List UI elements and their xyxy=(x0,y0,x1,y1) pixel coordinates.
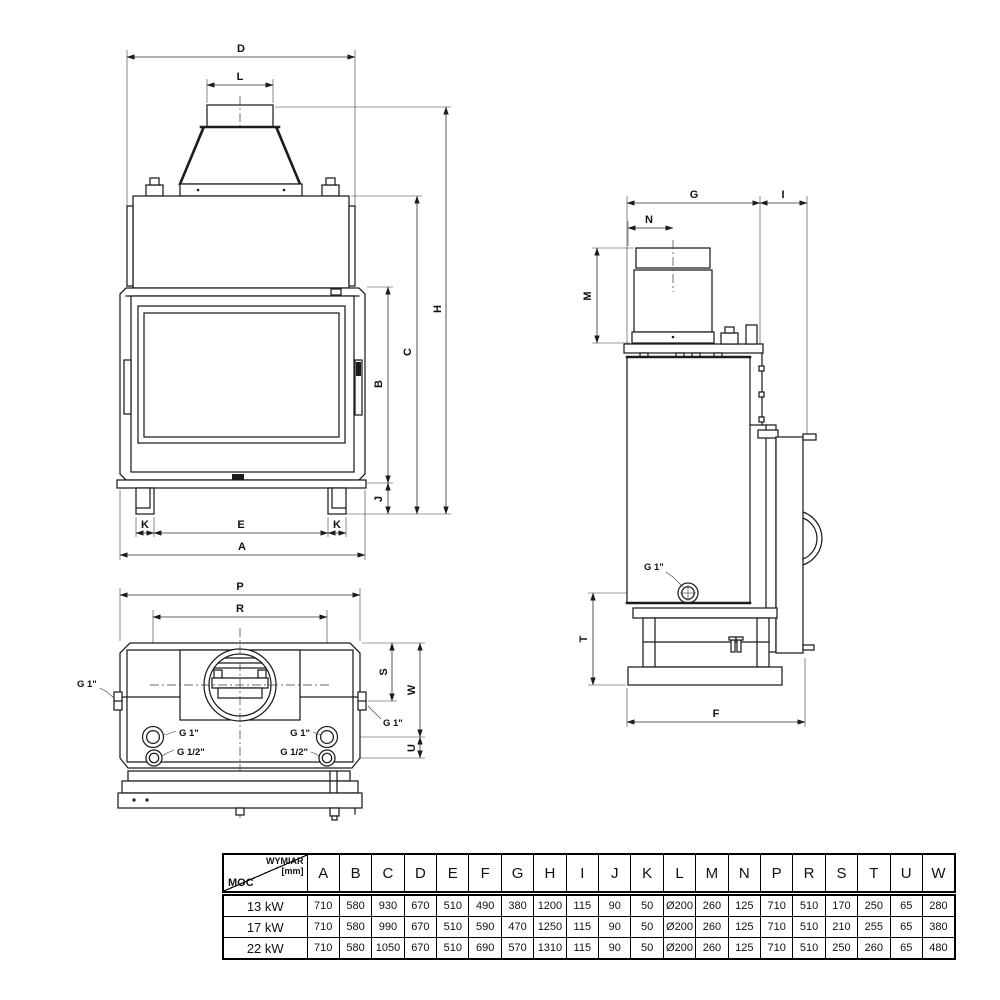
dim-value: 65 xyxy=(890,938,922,960)
top-fitting-left xyxy=(146,178,163,196)
row-power-label: 13 kW xyxy=(223,894,307,917)
row-power-label: 22 kW xyxy=(223,938,307,960)
dim-label-n: N xyxy=(645,214,653,226)
dim-value: Ø200 xyxy=(663,917,695,938)
base-plate-front xyxy=(117,480,366,488)
dim-label-k-left: K xyxy=(141,519,149,531)
dim-label-k-right: K xyxy=(333,519,341,531)
dim-value: Ø200 xyxy=(663,938,695,960)
dim-label-u: U xyxy=(406,744,418,752)
dim-label-p: P xyxy=(236,581,243,593)
dim-label-g: G xyxy=(690,189,699,201)
dim-value: 115 xyxy=(566,917,598,938)
col-header-F: F xyxy=(469,854,501,894)
dim-value: 710 xyxy=(760,938,792,960)
col-header-S: S xyxy=(825,854,857,894)
dim-value: 570 xyxy=(501,938,533,960)
table-row: 17 kW71058099067051059047012501159050Ø20… xyxy=(223,917,955,938)
dim-value: 510 xyxy=(437,894,469,917)
g1-socket-right xyxy=(358,692,381,719)
g1-label-side: G 1" xyxy=(644,562,664,573)
dim-label-r: R xyxy=(236,603,244,615)
dim-value: 710 xyxy=(307,938,339,960)
dim-value: 670 xyxy=(404,938,436,960)
table-body: 13 kW71058093067051049038012001159050Ø20… xyxy=(223,894,955,960)
table-header-row: WYMIAR [mm] MOC ABCDEFGHIJKLMNPRSTUW xyxy=(223,854,955,894)
col-header-T: T xyxy=(858,854,890,894)
dim-value: 580 xyxy=(339,938,371,960)
row-power-label: 17 kW xyxy=(223,917,307,938)
top-fitting-right xyxy=(322,178,339,196)
col-header-B: B xyxy=(339,854,371,894)
corner-unit-label: [mm] xyxy=(282,866,304,876)
dim-value: 280 xyxy=(922,894,955,917)
door-hinge xyxy=(124,360,131,414)
door-top-strips xyxy=(118,771,362,820)
safety-valve-stub xyxy=(746,325,757,344)
col-header-N: N xyxy=(728,854,760,894)
dim-value: 990 xyxy=(372,917,404,938)
dim-value: 670 xyxy=(404,917,436,938)
col-header-E: E xyxy=(437,854,469,894)
dim-value: 1310 xyxy=(534,938,566,960)
dim-label-e: E xyxy=(237,519,244,531)
g12-label-left-circle: G 1/2" xyxy=(177,747,205,758)
g12-label-right-circle: G 1/2" xyxy=(280,747,308,758)
dim-value: 380 xyxy=(922,917,955,938)
dim-label-t: T xyxy=(578,635,590,642)
table-row: 13 kW71058093067051049038012001159050Ø20… xyxy=(223,894,955,917)
col-header-W: W xyxy=(922,854,955,894)
dim-value: 125 xyxy=(728,894,760,917)
col-header-C: C xyxy=(372,854,404,894)
g1-label-left-socket: G 1" xyxy=(77,679,97,690)
dim-value: 580 xyxy=(339,894,371,917)
dim-value: 90 xyxy=(599,938,631,960)
col-header-D: D xyxy=(404,854,436,894)
chimney-hood-front xyxy=(180,127,302,196)
col-header-G: G xyxy=(501,854,533,894)
corner-moc-label: MOC xyxy=(228,877,254,889)
dim-value: Ø200 xyxy=(663,894,695,917)
top-view: P R S W U G 1" G 1" G 1" G 1/2" G 1" G 1… xyxy=(77,581,425,820)
table-row: 22 kW710580105067051069057013101159050Ø2… xyxy=(223,938,955,960)
dim-value: 250 xyxy=(825,938,857,960)
dim-value: 710 xyxy=(307,894,339,917)
dim-value: 590 xyxy=(469,917,501,938)
col-header-I: I xyxy=(566,854,598,894)
flue-collar-side xyxy=(632,240,714,343)
dim-value: 210 xyxy=(825,917,857,938)
dim-value: 50 xyxy=(631,917,663,938)
col-header-L: L xyxy=(663,854,695,894)
g1-label-left-circle: G 1" xyxy=(179,728,199,739)
col-header-H: H xyxy=(534,854,566,894)
heat-exchanger-body-front xyxy=(133,196,349,288)
col-header-J: J xyxy=(599,854,631,894)
g1-label-right-circle: G 1" xyxy=(290,728,310,739)
dim-value: 510 xyxy=(793,917,825,938)
dim-value: 115 xyxy=(566,894,598,917)
drawing-canvas: D L H C B J K E K A xyxy=(0,0,1000,1000)
dim-value: 1250 xyxy=(534,917,566,938)
dim-value: 170 xyxy=(825,894,857,917)
dim-value: 930 xyxy=(372,894,404,917)
dim-value: 50 xyxy=(631,894,663,917)
col-header-A: A xyxy=(307,854,339,894)
dim-label-a: A xyxy=(238,541,246,553)
col-header-U: U xyxy=(890,854,922,894)
dim-value: 380 xyxy=(501,894,533,917)
dim-label-f: F xyxy=(713,708,720,720)
dim-label-j: J xyxy=(373,496,385,502)
dim-value: 260 xyxy=(696,917,728,938)
front-view: D L H C B J K E K A xyxy=(117,43,451,560)
dim-value: 125 xyxy=(728,917,760,938)
dim-label-b: B xyxy=(373,380,385,388)
leg-left xyxy=(136,488,154,514)
dim-value: 710 xyxy=(760,894,792,917)
dimensions-table: WYMIAR [mm] MOC ABCDEFGHIJKLMNPRSTUW 13 … xyxy=(222,853,956,960)
dim-value: 510 xyxy=(793,894,825,917)
g1-socket-left xyxy=(100,688,122,710)
dim-value: 260 xyxy=(696,938,728,960)
pedestal-side xyxy=(627,603,782,685)
dim-value: 710 xyxy=(307,917,339,938)
dim-value: 125 xyxy=(728,938,760,960)
dim-value: 255 xyxy=(858,917,890,938)
dim-label-h: H xyxy=(432,305,444,313)
dim-value: 510 xyxy=(437,938,469,960)
dim-label-w: W xyxy=(406,684,418,695)
dim-value: 690 xyxy=(469,938,501,960)
g1-label-right-socket: G 1" xyxy=(383,718,403,729)
door-glass xyxy=(144,313,339,437)
dim-value: 90 xyxy=(599,917,631,938)
col-header-K: K xyxy=(631,854,663,894)
dim-value: 710 xyxy=(760,917,792,938)
door-front xyxy=(120,288,365,480)
dim-value: 260 xyxy=(858,938,890,960)
dim-label-i: I xyxy=(781,189,784,201)
dim-label-c: C xyxy=(402,348,414,356)
rear-frame-side xyxy=(750,353,776,652)
col-header-P: P xyxy=(760,854,792,894)
dim-value: 480 xyxy=(922,938,955,960)
col-header-M: M xyxy=(696,854,728,894)
dim-value: 1200 xyxy=(534,894,566,917)
dim-label-s: S xyxy=(378,668,390,675)
dim-value: 670 xyxy=(404,894,436,917)
dim-value: 115 xyxy=(566,938,598,960)
dim-value: 90 xyxy=(599,894,631,917)
dim-value: 65 xyxy=(890,917,922,938)
dim-value: 510 xyxy=(437,917,469,938)
table-corner-cell: WYMIAR [mm] MOC xyxy=(223,854,307,894)
dim-value: 260 xyxy=(696,894,728,917)
dim-label-d: D xyxy=(237,43,245,55)
dim-value: 470 xyxy=(501,917,533,938)
leg-right xyxy=(328,488,346,514)
dim-value: 50 xyxy=(631,938,663,960)
dim-label-m: M xyxy=(582,291,594,300)
dim-value: 510 xyxy=(793,938,825,960)
dim-value: 490 xyxy=(469,894,501,917)
corner-wymiar-label: WYMIAR xyxy=(266,856,304,866)
dim-value: 250 xyxy=(858,894,890,917)
technical-drawing-page: D L H C B J K E K A xyxy=(0,0,1000,1000)
ash-latch xyxy=(232,474,244,480)
side-view: G I N M T F G 1" xyxy=(578,189,822,727)
dim-value: 65 xyxy=(890,894,922,917)
dim-label-l: L xyxy=(237,71,244,83)
dim-value: 1050 xyxy=(372,938,404,960)
dim-value: 580 xyxy=(339,917,371,938)
col-header-R: R xyxy=(793,854,825,894)
